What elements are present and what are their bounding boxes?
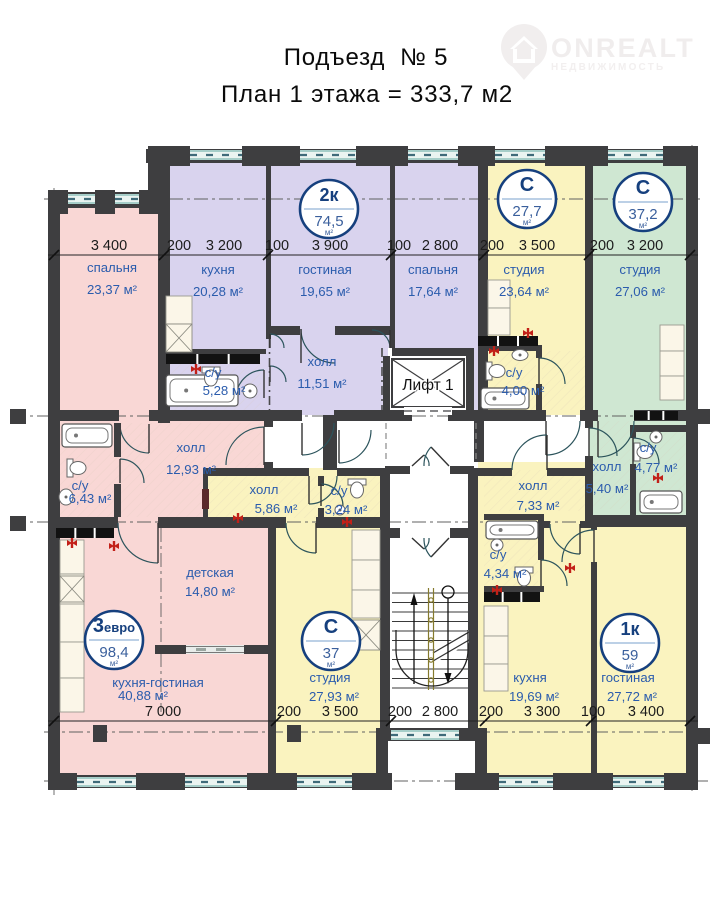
svg-text:холл: холл: [519, 478, 548, 493]
svg-text:200: 200: [277, 704, 301, 720]
svg-text:С: С: [520, 174, 534, 196]
svg-text:3 400: 3 400: [628, 704, 664, 720]
svg-text:м²: м²: [626, 662, 635, 671]
svg-text:с/у: с/у: [205, 365, 222, 380]
svg-text:студия: студия: [619, 262, 660, 277]
svg-text:200: 200: [479, 704, 503, 720]
svg-text:холл: холл: [308, 354, 337, 369]
svg-text:с/у: с/у: [640, 440, 657, 455]
svg-text:с/у: с/у: [331, 483, 348, 498]
svg-text:кухня: кухня: [513, 670, 547, 685]
svg-text:7 000: 7 000: [145, 704, 181, 720]
svg-text:4,00 м²: 4,00 м²: [502, 383, 545, 398]
svg-text:спальня: спальня: [408, 262, 458, 277]
svg-text:3 400: 3 400: [91, 238, 127, 254]
svg-text:23,37 м²: 23,37 м²: [87, 282, 138, 297]
svg-text:с/у: с/у: [506, 365, 523, 380]
svg-text:3 500: 3 500: [519, 238, 555, 254]
svg-text:2к: 2к: [319, 185, 339, 205]
svg-text:200: 200: [167, 238, 191, 254]
svg-text:17,64 м²: 17,64 м²: [408, 284, 459, 299]
svg-text:3 200: 3 200: [206, 238, 242, 254]
svg-text:19,69 м²: 19,69 м²: [509, 689, 560, 704]
svg-text:холл: холл: [177, 440, 206, 455]
svg-text:План 1 этажа = 333,7 м2: План 1 этажа = 333,7 м2: [221, 81, 513, 108]
svg-text:2 800: 2 800: [422, 704, 458, 720]
svg-text:холл: холл: [250, 482, 279, 497]
svg-text:кухня: кухня: [201, 262, 235, 277]
svg-text:4,77 м²: 4,77 м²: [635, 460, 678, 475]
svg-text:ONREALT: ONREALT: [551, 33, 695, 63]
svg-text:гостиная: гостиная: [298, 262, 352, 277]
svg-text:С: С: [324, 616, 338, 638]
svg-text:200: 200: [590, 238, 614, 254]
svg-text:11,51 м²: 11,51 м²: [297, 376, 347, 391]
svg-text:м²: м²: [325, 228, 334, 237]
svg-text:3 300: 3 300: [524, 704, 560, 720]
svg-text:200: 200: [388, 704, 412, 720]
svg-text:200: 200: [480, 238, 504, 254]
svg-text:5,40 м²: 5,40 м²: [586, 481, 629, 496]
svg-text:7,33 м²: 7,33 м²: [517, 498, 560, 513]
svg-text:19,65 м²: 19,65 м²: [300, 284, 351, 299]
svg-text:м²: м²: [110, 659, 119, 668]
svg-text:27,93 м²: 27,93 м²: [309, 689, 360, 704]
svg-text:4,34 м²: 4,34 м²: [484, 566, 527, 581]
svg-text:С: С: [636, 177, 650, 199]
svg-text:5,86 м²: 5,86 м²: [255, 501, 298, 516]
svg-text:40,88 м²: 40,88 м²: [118, 688, 169, 703]
svg-text:27,06 м²: 27,06 м²: [615, 284, 666, 299]
svg-text:НЕДВИЖИМОСТЬ: НЕДВИЖИМОСТЬ: [551, 62, 665, 73]
svg-text:20,28 м²: 20,28 м²: [193, 284, 244, 299]
svg-text:6,43 м²: 6,43 м²: [69, 491, 112, 506]
svg-text:3 500: 3 500: [322, 704, 358, 720]
svg-text:студия: студия: [503, 262, 544, 277]
svg-text:м²: м²: [639, 221, 648, 230]
svg-text:Подъезд № 5: Подъезд № 5: [284, 44, 449, 71]
svg-text:3 200: 3 200: [627, 238, 663, 254]
svg-text:с/у: с/у: [490, 547, 507, 562]
svg-text:детская: детская: [186, 565, 234, 580]
svg-text:27,72 м²: 27,72 м²: [607, 689, 658, 704]
svg-text:м²: м²: [327, 660, 336, 669]
svg-text:м²: м²: [523, 218, 532, 227]
svg-text:100: 100: [265, 238, 289, 254]
svg-text:Лифт 1: Лифт 1: [402, 377, 453, 394]
svg-text:спальня: спальня: [87, 260, 137, 275]
svg-text:5,28 м²: 5,28 м²: [203, 383, 246, 398]
svg-text:14,80 м²: 14,80 м²: [185, 584, 236, 599]
svg-text:студия: студия: [309, 670, 350, 685]
svg-text:холл: холл: [593, 459, 622, 474]
svg-text:100: 100: [387, 238, 411, 254]
svg-text:3,24 м²: 3,24 м²: [325, 502, 368, 517]
svg-text:1к: 1к: [620, 619, 640, 639]
svg-text:2 800: 2 800: [422, 238, 458, 254]
svg-text:23,64 м²: 23,64 м²: [499, 284, 550, 299]
svg-text:12,93 м²: 12,93 м²: [166, 462, 217, 477]
svg-text:100: 100: [581, 704, 605, 720]
svg-text:3 900: 3 900: [312, 238, 348, 254]
